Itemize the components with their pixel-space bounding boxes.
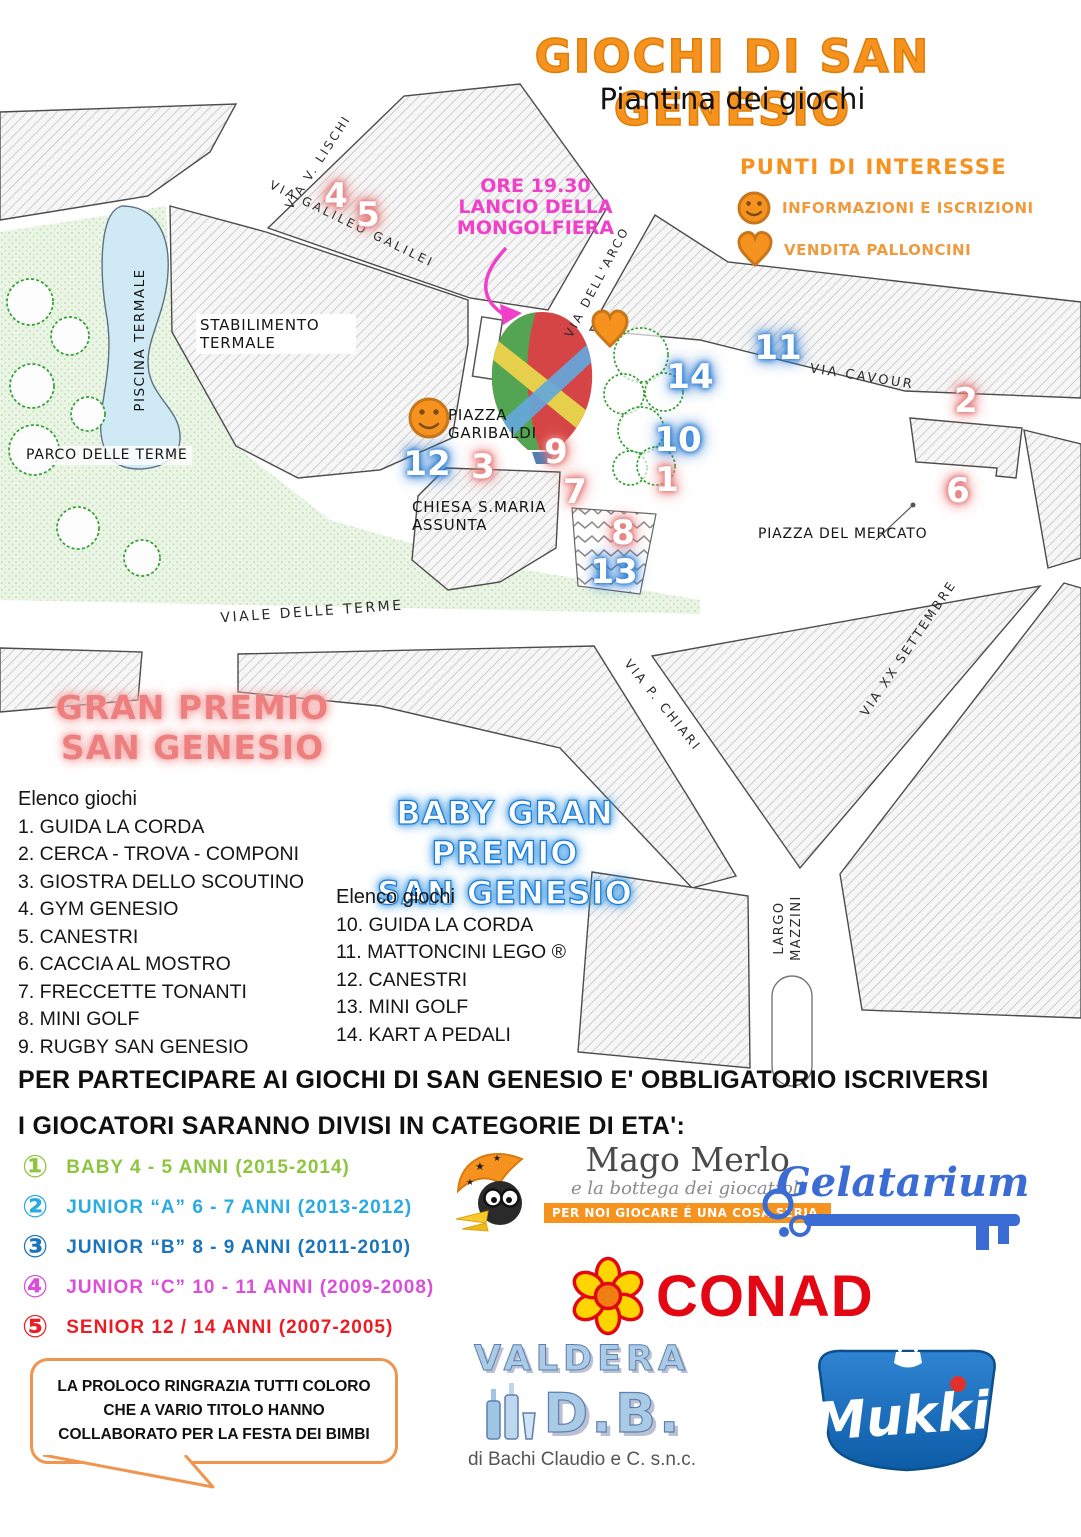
category-row-baby: ① BABY 4 - 5 ANNI (2015-2014) — [22, 1152, 350, 1183]
map-marker-11: 11 — [754, 331, 801, 365]
gran-premio-title-line2: SAN GENESIO — [20, 728, 365, 768]
place-label-piscina: PISCINA TERMALE — [132, 268, 148, 411]
gran-premio-title-line1: GRAN PREMIO — [20, 688, 365, 728]
category-row-junior-a: ② JUNIOR “A” 6 - 7 ANNI (2013-2012) — [22, 1192, 412, 1223]
circled-number-5: ⑤ — [22, 1312, 48, 1343]
sponsor-name-line2: D.B. — [543, 1386, 682, 1443]
list-item: 8. MINI GOLF — [18, 1006, 304, 1034]
map-marker-13: 13 — [590, 555, 637, 589]
sponsor-conad: CONAD — [568, 1256, 874, 1336]
sponsor-name-line1: VALDERA — [452, 1342, 712, 1377]
flyer-page: GIOCHI DI SAN GENESIO Piantina dei gioch… — [0, 0, 1081, 1537]
circled-number-4: ④ — [22, 1272, 48, 1303]
speech-bubble-tail — [35, 1455, 235, 1497]
circled-number-3: ③ — [22, 1232, 48, 1263]
list-item: 12. CANESTRI — [336, 967, 566, 995]
legend-item-label: INFORMAZIONI E ISCRIZIONI — [782, 199, 1034, 217]
list-item: 4. GYM GENESIO — [18, 896, 304, 924]
list-item: 1. GUIDA LA CORDA — [18, 814, 304, 842]
list-item: 10. GUIDA LA CORDA — [336, 912, 566, 940]
baby-gran-premio-list: Elenco giochi 10. GUIDA LA CORDA 11. MAT… — [336, 884, 566, 1049]
wizard-bird-icon: ★★★ — [448, 1143, 540, 1243]
circled-number-1: ① — [22, 1152, 48, 1183]
list-item: 9. RUGBY SAN GENESIO — [18, 1034, 304, 1062]
map-marker-8: 8 — [611, 516, 635, 550]
map-marker-5: 5 — [356, 198, 380, 232]
map-marker-10: 10 — [654, 423, 701, 457]
sponsor-subtext: di Bachi Claudio e C. s.n.c. — [452, 1449, 712, 1471]
category-row-senior: ⑤ SENIOR 12 / 14 ANNI (2007-2005) — [22, 1312, 393, 1343]
map-marker-12: 12 — [403, 447, 450, 481]
category-row-junior-c: ④ JUNIOR “C” 10 - 11 ANNI (2009-2008) — [22, 1272, 434, 1303]
street-label-largo-mazzini: LARGO MAZZINI — [772, 889, 806, 967]
category-label: JUNIOR “A” 6 - 7 ANNI (2013-2012) — [66, 1197, 412, 1219]
map-marker-4: 4 — [324, 179, 348, 213]
map-marker-7: 7 — [563, 475, 587, 509]
map-marker-6: 6 — [946, 474, 970, 508]
place-label-parco: PARCO DELLE TERME — [22, 446, 192, 465]
category-label: BABY 4 - 5 ANNI (2015-2014) — [66, 1157, 350, 1179]
sponsor-name: Mukki — [812, 1381, 993, 1453]
heart-icon — [736, 230, 774, 270]
category-label: SENIOR 12 / 14 ANNI (2007-2005) — [66, 1317, 393, 1339]
legend-item-info: INFORMAZIONI E ISCRIZIONI — [736, 190, 1034, 226]
list-item: 11. MATTONCINI LEGO ® — [336, 939, 566, 967]
category-row-junior-b: ③ JUNIOR “B” 8 - 9 ANNI (2011-2010) — [22, 1232, 411, 1263]
registration-notice: PER PARTECIPARE AI GIOCHI DI SAN GENESIO… — [18, 1066, 989, 1095]
legend-item-label: VENDITA PALLONCINI — [784, 241, 971, 259]
gran-premio-list: Elenco giochi 1. GUIDA LA CORDA 2. CERCA… — [18, 786, 304, 1061]
list-header: Elenco giochi — [336, 884, 566, 912]
smiley-icon — [736, 190, 772, 226]
list-header: Elenco giochi — [18, 786, 304, 814]
list-item: 7. FRECCETTE TONANTI — [18, 979, 304, 1007]
map-marker-3: 3 — [471, 450, 495, 484]
list-item: 5. CANESTRI — [18, 924, 304, 952]
sponsor-name: CONAD — [656, 1263, 874, 1330]
map-marker-1: 1 — [655, 463, 679, 497]
page-subtitle: Piantina dei giochi — [420, 82, 1045, 116]
list-item: 2. CERCA - TROVA - COMPONI — [18, 841, 304, 869]
list-item: 3. GIOSTRA DELLO SCOUTINO — [18, 869, 304, 897]
map-marker-9: 9 — [544, 435, 568, 469]
list-item: 13. MINI GOLF — [336, 994, 566, 1022]
conad-flower-icon — [568, 1256, 648, 1336]
svg-text:★: ★ — [466, 1178, 474, 1188]
svg-text:★: ★ — [475, 1160, 485, 1173]
note-line: MONGOLFIERA — [448, 218, 623, 239]
note-line: ORE 19.30 — [448, 176, 623, 197]
gran-premio-title: GRAN PREMIO SAN GENESIO — [20, 688, 365, 767]
legend-title: PUNTI DI INTERESSE — [740, 155, 1007, 179]
map-marker-2: 2 — [954, 384, 978, 418]
thanks-speech-bubble: LA PROLOCO RINGRAZIA TUTTI COLORO CHE A … — [30, 1358, 398, 1464]
sponsor-name: Gelatarium — [777, 1159, 1030, 1206]
map-marker-14: 14 — [666, 360, 713, 394]
circled-number-2: ② — [22, 1192, 48, 1223]
leader-dot — [911, 503, 916, 508]
sponsor-gelatarium: Gelatarium — [748, 1140, 1048, 1250]
bottles-icon — [481, 1377, 537, 1443]
place-label-stabilimento: STABILIMENTO TERMALE — [196, 314, 356, 354]
category-label: JUNIOR “B” 8 - 9 ANNI (2011-2010) — [66, 1237, 411, 1259]
sponsor-valdera: VALDERA D.B. di Bachi Claudio e C. s.n.c… — [452, 1342, 712, 1471]
list-item: 6. CACCIA AL MOSTRO — [18, 951, 304, 979]
baby-title-line1: BABY GRAN PREMIO — [330, 793, 680, 873]
smiley-icon — [410, 399, 448, 437]
category-label: JUNIOR “C” 10 - 11 ANNI (2009-2008) — [66, 1277, 434, 1299]
categories-notice: I GIOCATORI SARANNO DIVISI IN CATEGORIE … — [18, 1112, 685, 1141]
svg-text:★: ★ — [493, 1154, 501, 1164]
note-line: LANCIO DELLA — [448, 197, 623, 218]
legend-item-balloons: VENDITA PALLONCINI — [736, 230, 971, 270]
place-label-garibaldi: PIAZZA GARIBALDI — [448, 406, 548, 442]
place-label-chiesa: CHIESA S.MARIA ASSUNTA — [412, 498, 547, 534]
sponsor-mukki: Mukki — [800, 1336, 1015, 1486]
list-item: 14. KART A PEDALI — [336, 1022, 566, 1050]
balloon-launch-note: ORE 19.30 LANCIO DELLA MONGOLFIERA — [448, 176, 623, 239]
place-label-mercato: PIAZZA DEL MERCATO — [758, 526, 927, 543]
